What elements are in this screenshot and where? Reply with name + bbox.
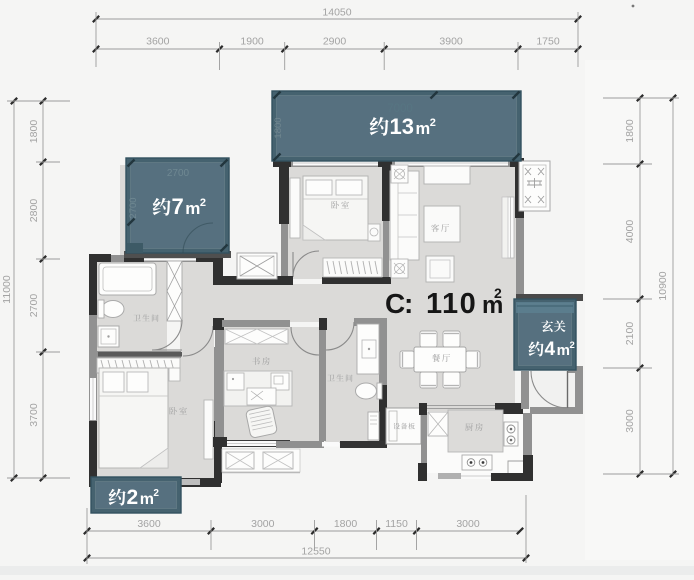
svg-text:13: 13 bbox=[390, 114, 414, 139]
svg-text:3700: 3700 bbox=[28, 403, 40, 427]
svg-text:2700: 2700 bbox=[28, 294, 40, 318]
svg-text:1800: 1800 bbox=[334, 518, 358, 530]
svg-text:4000: 4000 bbox=[624, 220, 636, 244]
svg-text:1800: 1800 bbox=[624, 119, 636, 143]
svg-text:1150: 1150 bbox=[385, 518, 408, 530]
svg-text:7: 7 bbox=[172, 194, 184, 219]
svg-text:1900: 1900 bbox=[240, 36, 264, 48]
svg-text:2: 2 bbox=[153, 488, 159, 499]
svg-text:2: 2 bbox=[200, 197, 206, 209]
svg-text:m: m bbox=[185, 199, 200, 218]
svg-text:2: 2 bbox=[430, 117, 436, 129]
svg-text:2100: 2100 bbox=[624, 322, 636, 346]
svg-text:1800: 1800 bbox=[273, 117, 284, 138]
svg-text:4: 4 bbox=[545, 339, 556, 360]
svg-text:2: 2 bbox=[494, 285, 502, 301]
svg-text:m: m bbox=[140, 491, 154, 508]
svg-text:2: 2 bbox=[127, 486, 139, 509]
svg-text:110: 110 bbox=[426, 288, 477, 320]
svg-text:11000: 11000 bbox=[1, 275, 13, 304]
svg-text:1800: 1800 bbox=[28, 120, 40, 144]
svg-text:3600: 3600 bbox=[146, 36, 170, 48]
svg-text:1750: 1750 bbox=[536, 36, 560, 48]
svg-text:m: m bbox=[557, 342, 570, 359]
svg-text:2700: 2700 bbox=[128, 197, 139, 218]
svg-text:3000: 3000 bbox=[251, 518, 275, 530]
svg-text::: : bbox=[404, 288, 413, 319]
svg-text:2: 2 bbox=[570, 340, 575, 351]
svg-text:3000: 3000 bbox=[456, 518, 480, 530]
svg-text:3900: 3900 bbox=[439, 36, 463, 48]
svg-text:C: C bbox=[385, 288, 405, 319]
svg-text:3600: 3600 bbox=[137, 518, 161, 530]
svg-text:2700: 2700 bbox=[167, 168, 190, 179]
svg-text:2900: 2900 bbox=[323, 36, 347, 48]
svg-text:14050: 14050 bbox=[322, 7, 351, 19]
svg-text:10900: 10900 bbox=[657, 271, 669, 300]
svg-text:12550: 12550 bbox=[301, 546, 330, 558]
svg-text:3000: 3000 bbox=[624, 409, 636, 433]
svg-text:2800: 2800 bbox=[28, 199, 40, 223]
svg-text:m: m bbox=[416, 120, 431, 138]
